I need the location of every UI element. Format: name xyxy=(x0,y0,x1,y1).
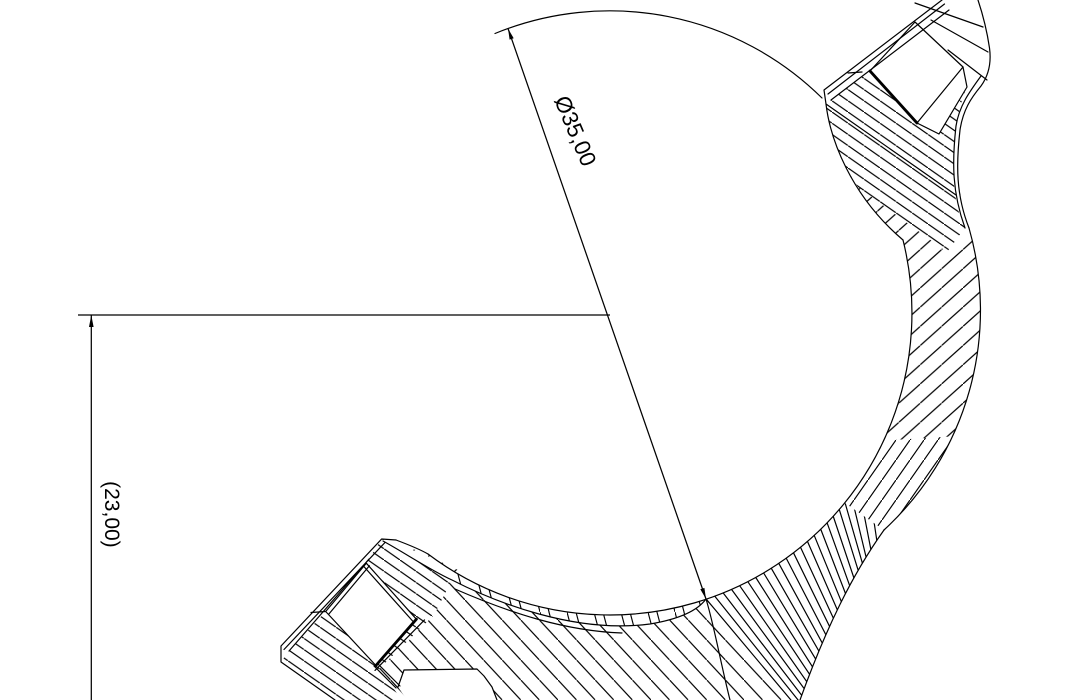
svg-text:(23,00): (23,00) xyxy=(100,481,123,548)
